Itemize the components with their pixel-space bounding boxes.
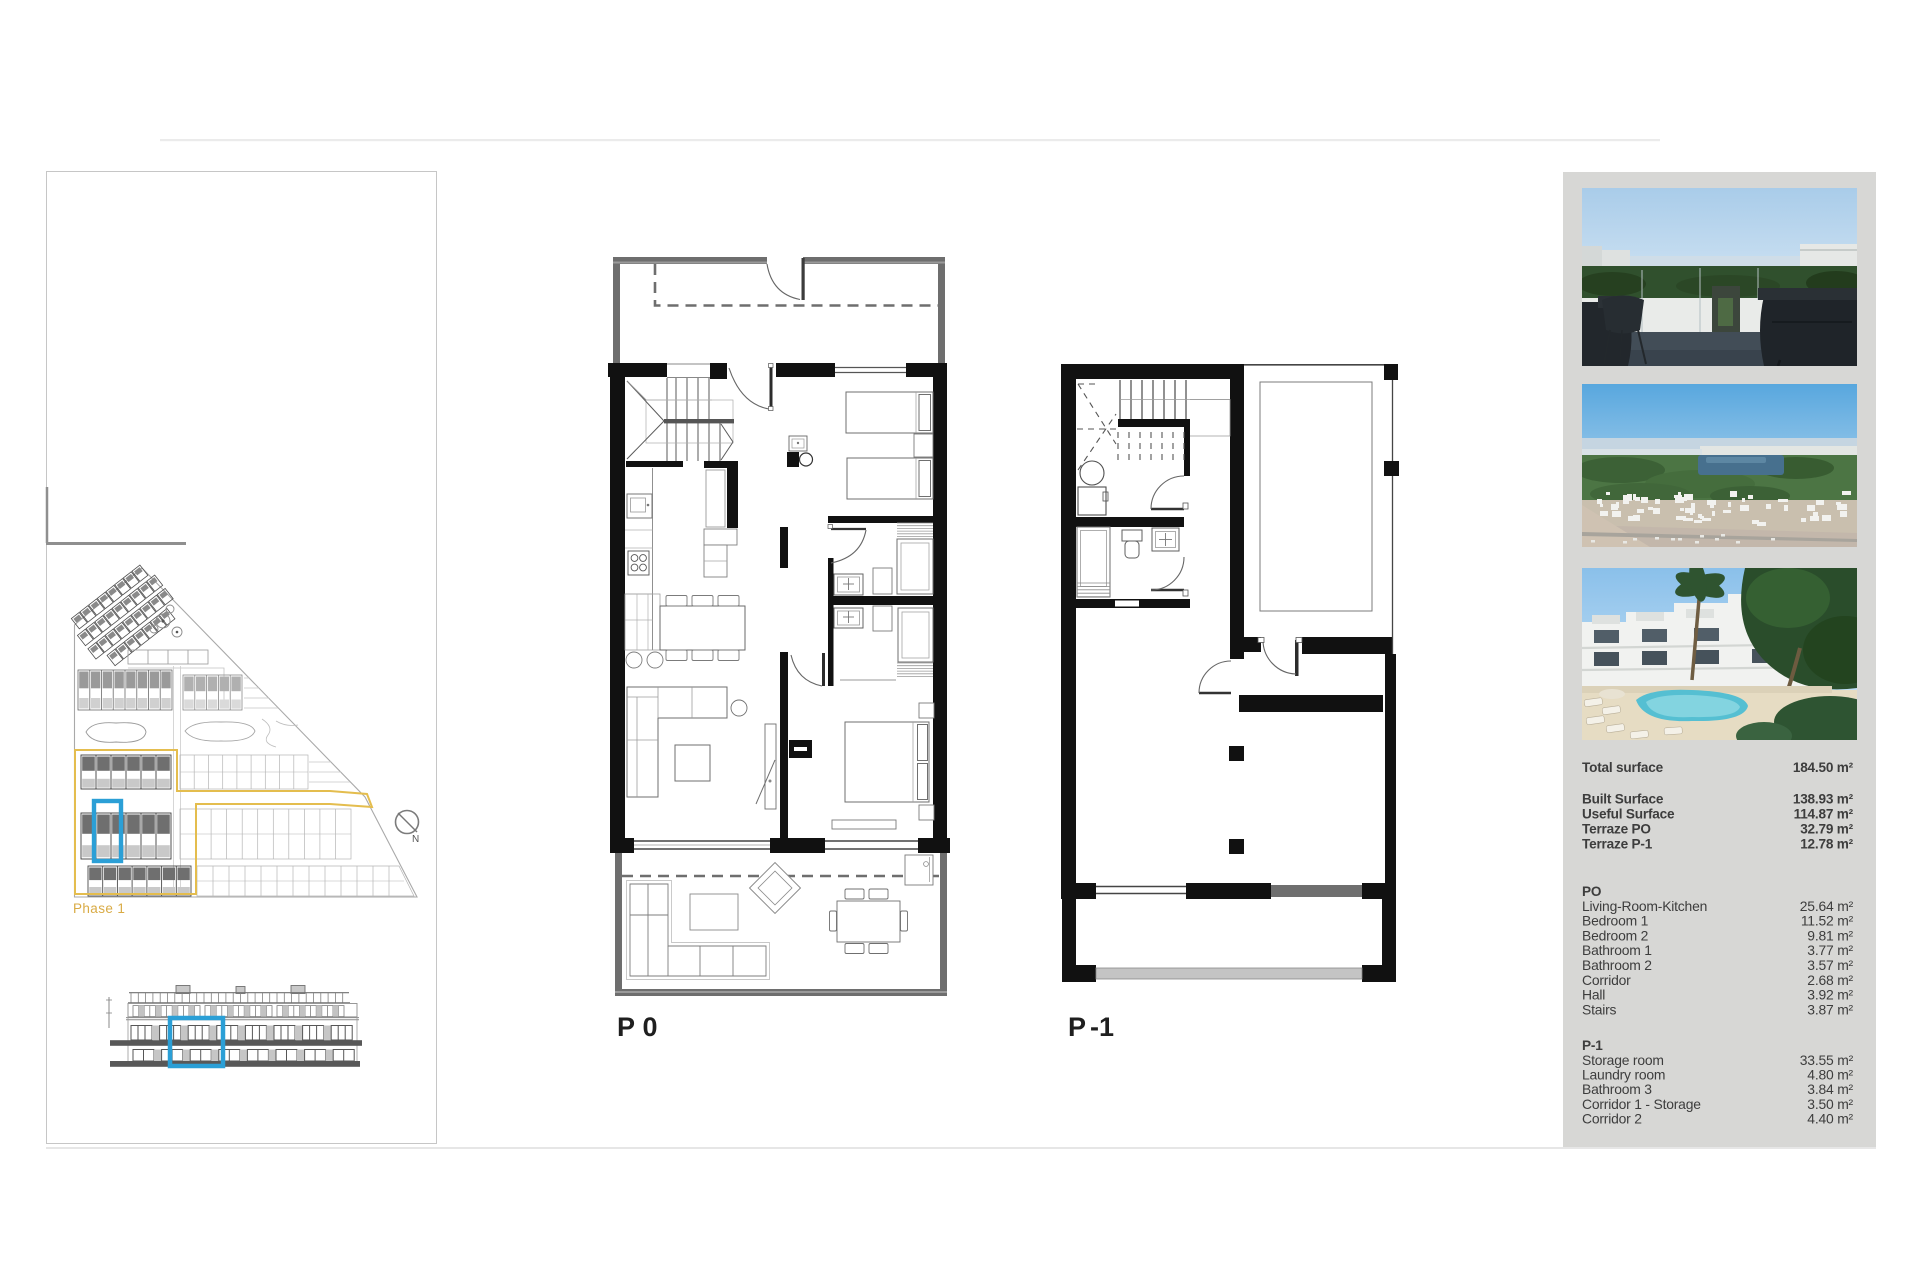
svg-text:N: N [412,834,419,845]
svg-text:4.80 m²: 4.80 m² [1807,1067,1853,1083]
svg-text:3.87 m²: 3.87 m² [1807,1001,1853,1017]
svg-text:114.87 m²: 114.87 m² [1794,807,1854,822]
svg-text:3.84 m²: 3.84 m² [1807,1081,1853,1097]
svg-text:Bathroom 3: Bathroom 3 [1582,1081,1652,1097]
svg-text:Storage room: Storage room [1582,1052,1664,1068]
svg-text:Bathroom 1: Bathroom 1 [1582,942,1652,958]
svg-text:Total surface: Total surface [1582,760,1664,775]
svg-text:Living-Room-Kitchen: Living-Room-Kitchen [1582,898,1707,914]
svg-text:4.40 m²: 4.40 m² [1807,1111,1853,1127]
svg-text:Stairs: Stairs [1582,1001,1617,1017]
svg-text:Bedroom 1: Bedroom 1 [1582,913,1649,929]
svg-text:P-1: P-1 [1582,1038,1603,1053]
svg-text:Corridor: Corridor [1582,972,1631,988]
svg-text:Bathroom 2: Bathroom 2 [1582,957,1652,973]
svg-text:Hall: Hall [1582,987,1605,1003]
svg-text:Corridor 1 - Storage: Corridor 1 - Storage [1582,1096,1701,1112]
svg-text:Built Surface: Built Surface [1582,792,1664,807]
svg-text:12.78 m²: 12.78 m² [1800,837,1853,852]
svg-text:184.50 m²: 184.50 m² [1793,760,1854,775]
svg-text:3.57 m²: 3.57 m² [1807,957,1853,973]
svg-text:11.52 m²: 11.52 m² [1801,913,1854,929]
svg-text:Phase 1: Phase 1 [73,901,125,916]
svg-text:3.77 m²: 3.77 m² [1807,942,1853,958]
svg-text:PO: PO [1582,884,1601,899]
svg-text:Corridor 2: Corridor 2 [1582,1111,1642,1127]
svg-text:138.93 m²: 138.93 m² [1793,792,1854,807]
svg-text:2.68 m²: 2.68 m² [1807,972,1853,988]
svg-text:Terraze P-1: Terraze P-1 [1582,837,1653,852]
svg-text:3.50 m²: 3.50 m² [1807,1096,1853,1112]
svg-text:3.92 m²: 3.92 m² [1807,987,1853,1003]
svg-text:Bedroom 2: Bedroom 2 [1582,927,1649,943]
svg-text:Terraze PO: Terraze PO [1582,822,1651,837]
svg-text:9.81 m²: 9.81 m² [1807,927,1853,943]
svg-text:32.79 m²: 32.79 m² [1800,822,1853,837]
svg-text:Laundry room: Laundry room [1582,1067,1665,1083]
svg-text:25.64 m²: 25.64 m² [1800,898,1854,914]
svg-text:Useful Surface: Useful Surface [1582,807,1675,822]
svg-text:P-1: P-1 [1068,1012,1114,1042]
svg-text:33.55 m²: 33.55 m² [1800,1052,1854,1068]
